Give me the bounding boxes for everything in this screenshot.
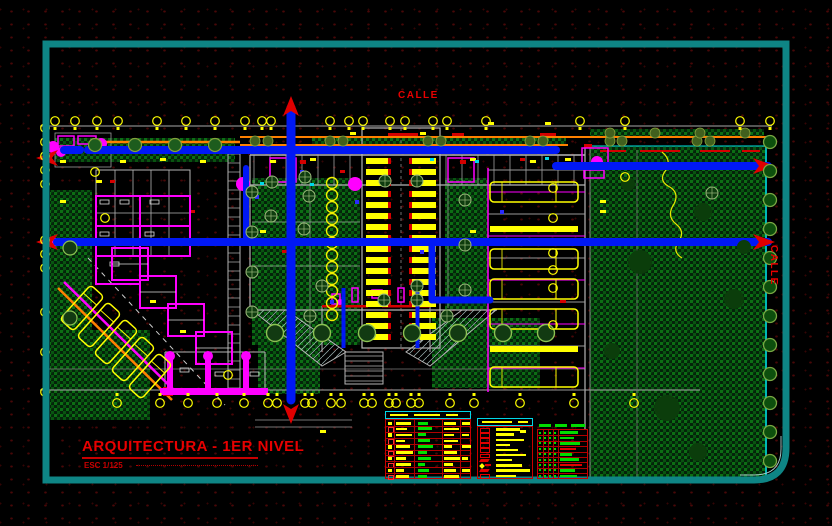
check-dot [539, 464, 541, 466]
check-dot [554, 442, 556, 444]
check-dot [544, 459, 546, 461]
value-bar [444, 469, 456, 472]
value-bar [444, 463, 453, 466]
check-dot [549, 432, 551, 434]
header-text-dash [518, 421, 528, 424]
door-glyph [480, 438, 490, 443]
finish-bar [560, 448, 576, 451]
check-dot [544, 464, 546, 466]
key-square [388, 469, 392, 473]
scale-dotted-rule [136, 465, 258, 466]
door-glyph [485, 464, 491, 466]
header-text-dash [555, 424, 567, 427]
label-bar [396, 434, 412, 437]
check-dot [549, 459, 551, 461]
value-bar [462, 422, 470, 425]
label-bar [396, 451, 413, 454]
check-dot [544, 437, 546, 439]
title-underline [82, 457, 258, 459]
check-dot [539, 453, 541, 455]
value-bar [444, 428, 459, 431]
green-symbol [418, 427, 432, 430]
label-bar [496, 475, 516, 477]
value-bar [462, 434, 469, 437]
label-bar [496, 444, 510, 446]
legend-table-materials-header [385, 411, 471, 419]
check-dot [549, 442, 551, 444]
label-bar [496, 439, 524, 441]
header-text-dash [571, 424, 585, 427]
value-bar [444, 451, 457, 454]
label-bar [496, 433, 514, 435]
value-bar [462, 457, 468, 460]
check-dot [539, 442, 541, 444]
green-symbol [418, 445, 433, 448]
key-square [388, 457, 392, 461]
label-bar [396, 469, 404, 472]
check-dot [554, 432, 556, 434]
check-dot [539, 448, 541, 450]
finish-bar [560, 453, 572, 456]
check-dot [549, 448, 551, 450]
door-glyph [480, 443, 490, 448]
check-dot [544, 475, 546, 477]
key-square [388, 422, 392, 426]
drawing-title: ARQUITECTURA - 1ER NIVEL [82, 438, 304, 455]
legend-table-doors [477, 418, 533, 479]
value-bar [444, 475, 459, 478]
label-bar [496, 469, 530, 471]
finish-bar [560, 431, 578, 434]
label-bar [496, 449, 518, 451]
finishes-body [537, 429, 588, 479]
legend-table-materials [385, 411, 471, 479]
label-bar [496, 428, 520, 430]
label-bar [396, 445, 410, 448]
green-symbol [418, 475, 427, 478]
finish-bar [560, 442, 580, 445]
doors-body [477, 426, 533, 479]
check-dot [544, 469, 546, 471]
door-glyph [480, 454, 490, 459]
check-dot [554, 453, 556, 455]
door-glyph [480, 474, 490, 479]
check-dot [544, 442, 546, 444]
header-text-dash [539, 424, 551, 427]
value-bar [444, 445, 452, 448]
check-dot [554, 464, 556, 466]
label-bar [496, 459, 512, 461]
label-bar [396, 457, 406, 460]
col-rule [558, 430, 559, 478]
label-bar [496, 464, 522, 466]
check-dot [554, 448, 556, 450]
check-dot [544, 453, 546, 455]
value-bar [444, 457, 460, 460]
header-text-dash [482, 421, 512, 424]
label-bar [496, 454, 526, 456]
green-symbol [418, 439, 430, 442]
check-dot [549, 469, 551, 471]
check-dot [549, 464, 551, 466]
check-dot [549, 475, 551, 477]
label-bar [396, 428, 407, 431]
key-square [388, 433, 392, 437]
door-glyph [480, 433, 490, 438]
header-text-dash [446, 414, 458, 417]
check-dot [539, 475, 541, 477]
check-dot [554, 459, 556, 461]
finish-bar [560, 469, 575, 472]
green-symbol [418, 451, 427, 454]
legend-table-finishes [537, 423, 588, 479]
finish-bar [560, 458, 579, 461]
cad-viewport: { "labels": { "street_top": "CALLE", "st… [0, 0, 832, 526]
street-label-right: CALLE [768, 245, 779, 286]
check-dot [539, 437, 541, 439]
door-glyph [480, 448, 490, 453]
green-symbol [418, 463, 425, 466]
header-text-dash [390, 414, 408, 417]
check-dot [554, 469, 556, 471]
label-bar [396, 463, 411, 466]
check-dot [539, 432, 541, 434]
check-dot [554, 475, 556, 477]
legend-table-doors-header [477, 418, 533, 426]
value-bar [462, 445, 471, 448]
door-glyph [479, 469, 489, 472]
header-text-dash [414, 414, 440, 417]
key-square [388, 445, 392, 449]
value-bar [444, 434, 454, 437]
key-square [388, 475, 394, 481]
check-dot [544, 432, 546, 434]
green-symbol [418, 457, 431, 460]
label-bar [396, 422, 411, 425]
value-bar [444, 422, 456, 425]
label-bar [396, 475, 409, 478]
check-dot [554, 437, 556, 439]
check-dot [549, 437, 551, 439]
finish-bar [560, 464, 582, 467]
label-bar [396, 440, 405, 443]
street-label-top: CALLE [398, 90, 439, 101]
check-dot [539, 469, 541, 471]
check-dot [544, 448, 546, 450]
green-symbol [418, 469, 429, 472]
green-symbol [418, 433, 426, 436]
value-bar [462, 469, 470, 472]
door-glyph [479, 459, 489, 462]
finish-bar [560, 475, 577, 478]
check-dot [549, 453, 551, 455]
star-glyph [479, 463, 485, 469]
door-glyph [480, 428, 490, 433]
value-bar [444, 440, 458, 443]
finish-bar [560, 437, 574, 440]
check-dot [539, 459, 541, 461]
green-symbol [418, 422, 428, 425]
materials-body [385, 419, 471, 479]
scale-note: ESC 1/125 [84, 461, 123, 470]
